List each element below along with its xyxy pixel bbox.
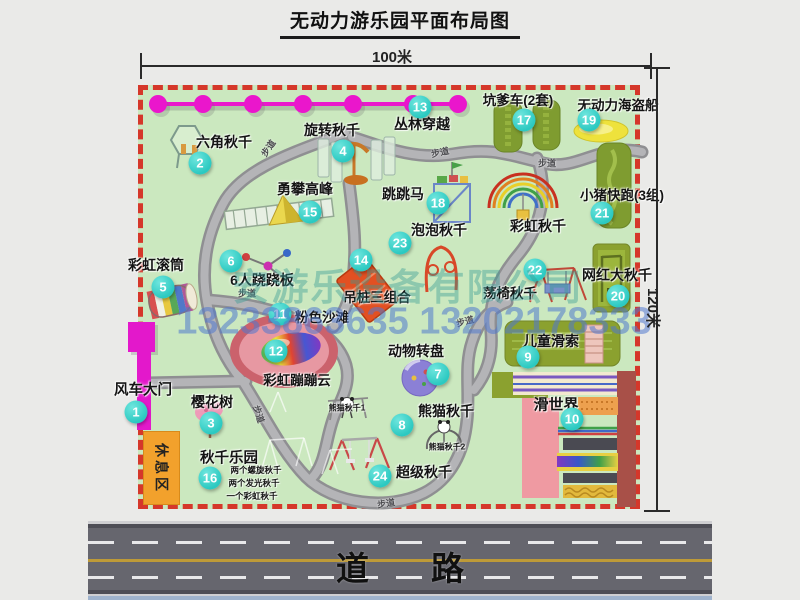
page-title-text: 无动力游乐园平面布局图: [280, 6, 520, 39]
attraction-marker-10[interactable]: 10: [561, 408, 584, 431]
attraction-marker-7[interactable]: 7: [427, 363, 450, 386]
attraction-marker-14[interactable]: 14: [350, 249, 373, 272]
attraction-marker-20[interactable]: 20: [607, 285, 630, 308]
dimension-tick-right: [650, 53, 652, 79]
attraction-marker-3[interactable]: 3: [200, 412, 223, 435]
attraction-marker-23[interactable]: 23: [389, 232, 412, 255]
attraction-marker-11[interactable]: 11: [269, 303, 292, 326]
map-artwork: [0, 0, 800, 600]
attraction-marker-16[interactable]: 16: [199, 467, 222, 490]
rest-area-label: 休息区: [152, 443, 172, 494]
dimension-tick-bottom: [644, 510, 670, 512]
attraction-marker-18[interactable]: 18: [427, 192, 450, 215]
road-curb-strip: [88, 596, 712, 600]
slide-world-structure: [492, 371, 636, 507]
dimension-label-width: 100米: [372, 46, 412, 67]
attraction-marker-2[interactable]: 2: [189, 152, 212, 175]
bubble-swing-structure: [426, 247, 456, 292]
road: 道路: [88, 524, 712, 594]
attraction-marker-15[interactable]: 15: [299, 201, 322, 224]
attraction-marker-24[interactable]: 24: [369, 465, 392, 488]
dimension-tick-left: [140, 53, 142, 79]
park-layout-screenshot: 无动力游乐园平面布局图 100米 120米: [0, 0, 800, 600]
page-title: 无动力游乐园平面布局图: [0, 6, 800, 39]
attraction-marker-4[interactable]: 4: [332, 140, 355, 163]
seesaw-structure: [242, 249, 291, 283]
dimension-tick-top: [644, 67, 670, 69]
road-label: 道路: [88, 542, 712, 590]
attraction-marker-12[interactable]: 12: [265, 340, 288, 363]
attraction-marker-19[interactable]: 19: [578, 109, 601, 132]
attraction-marker-5[interactable]: 5: [152, 276, 175, 299]
attraction-marker-22[interactable]: 22: [524, 259, 547, 282]
attraction-marker-6[interactable]: 6: [220, 250, 243, 273]
attraction-marker-1[interactable]: 1: [125, 401, 148, 424]
dimension-label-height: 120米: [643, 288, 664, 328]
attraction-marker-17[interactable]: 17: [513, 109, 536, 132]
attraction-marker-8[interactable]: 8: [391, 414, 414, 437]
attraction-marker-13[interactable]: 13: [409, 96, 432, 119]
attraction-marker-9[interactable]: 9: [517, 346, 540, 369]
rest-area-box: 休息区: [143, 431, 180, 505]
attraction-marker-21[interactable]: 21: [591, 202, 614, 225]
